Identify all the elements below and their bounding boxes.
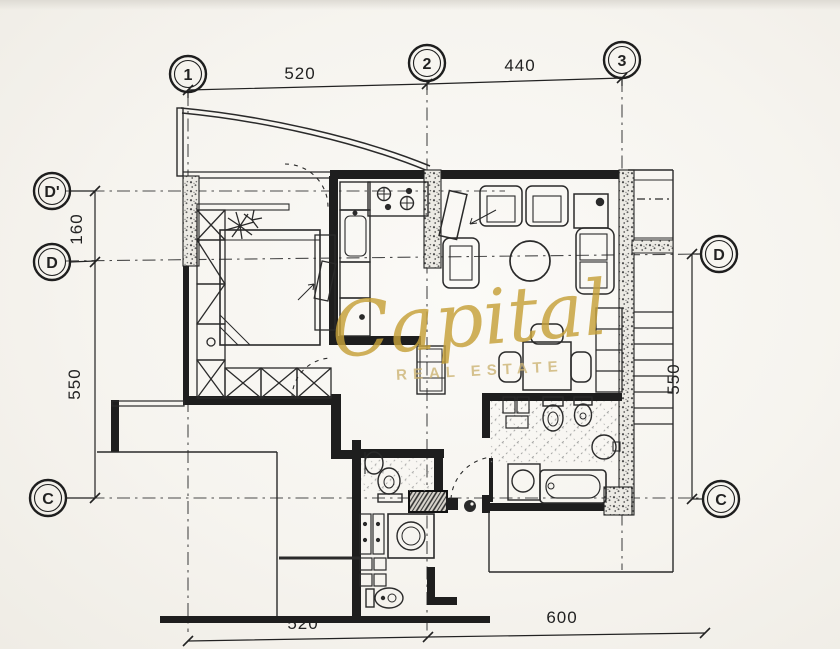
- vanity-basin: [508, 464, 540, 500]
- pointer-arrow: [298, 284, 314, 300]
- grid-marker-c-right: C: [703, 481, 739, 517]
- wall-step-down: [331, 394, 341, 458]
- svg-text:1: 1: [184, 67, 193, 84]
- balcony-curved-wall-inner: [182, 113, 428, 171]
- dim-bottom-600: 600: [546, 608, 577, 627]
- armchair-2: [526, 186, 568, 226]
- stair-landing: [634, 180, 673, 238]
- grid-marker-d-prime-left: D': [34, 173, 70, 209]
- bathroom: [490, 397, 620, 503]
- wall-right: [619, 170, 634, 515]
- wall-bottom: [160, 616, 490, 623]
- svg-text:D: D: [46, 255, 58, 272]
- wall-nub-left: [111, 400, 119, 452]
- bath-door-leaf: [489, 458, 493, 502]
- dim-top-520: 520: [284, 64, 315, 83]
- terrace: [177, 108, 430, 207]
- grid-marker-2: 2: [409, 45, 445, 81]
- svg-text:C: C: [42, 491, 54, 508]
- grid-marker-3: 3: [604, 42, 640, 78]
- kitchen-sink: [340, 210, 370, 262]
- double-bed: [220, 230, 320, 345]
- svg-text:D': D': [44, 184, 59, 201]
- plant-icon: [226, 210, 262, 239]
- hall-door-arc: [451, 457, 492, 499]
- dim-left-550: 550: [65, 368, 84, 399]
- window-rail: [197, 204, 289, 210]
- grid-marker-1: 1: [170, 56, 206, 92]
- terrace-left-wall: [177, 108, 183, 176]
- wc-tile-floor: [361, 458, 433, 491]
- grid-marker-c-left: C: [30, 480, 66, 516]
- dining-chair-right: [571, 352, 591, 382]
- laundry: [360, 514, 434, 608]
- grid-marker-d-right: D: [701, 236, 737, 272]
- duct-shaft: [409, 491, 447, 512]
- dim-left-160: 160: [67, 213, 86, 244]
- wall-top: [330, 170, 628, 179]
- svg-text:D: D: [713, 247, 725, 264]
- stove: [368, 182, 428, 216]
- wall-bath-left-upper: [482, 393, 490, 438]
- side-table: [574, 194, 608, 228]
- floor-plan-drawing: 520 440 160 550 550 520 600 1 2 3 D' D: [0, 0, 840, 649]
- wall-left-lower: [183, 266, 189, 398]
- wall-bath-hatch-block: [604, 487, 632, 515]
- bedroom-door-arc: [292, 358, 332, 398]
- terrace-door-arc: [285, 164, 328, 207]
- floor-plan-page: 520 440 160 550 550 520 600 1 2 3 D' D: [0, 0, 840, 649]
- wall-shaft-step: [446, 498, 458, 510]
- laundry-cabinets: [360, 514, 386, 586]
- wall-laundry-inner-l-horiz: [427, 597, 457, 605]
- wardrobe-row: [225, 368, 331, 398]
- wall-divider-kitchen-living: [424, 170, 441, 268]
- svg-text:C: C: [715, 492, 727, 509]
- svg-text:3: 3: [618, 53, 627, 70]
- wall-thin-left: [112, 401, 184, 406]
- bedroom: [197, 204, 336, 398]
- laundry-toilet: [366, 588, 403, 608]
- stair-hatch-strip: [632, 240, 673, 253]
- grid-marker-d-left: D: [34, 244, 70, 280]
- door-knob: [464, 500, 476, 512]
- armchair-1: [480, 186, 522, 226]
- dim-top-440: 440: [504, 56, 535, 75]
- wall-bath-bottom: [482, 503, 608, 511]
- svg-text:2: 2: [423, 56, 432, 73]
- wall-wc-top: [352, 449, 444, 458]
- wall-wc-right: [434, 449, 443, 495]
- wardrobe-column: [197, 210, 225, 398]
- bath-tile-floor: [490, 401, 618, 463]
